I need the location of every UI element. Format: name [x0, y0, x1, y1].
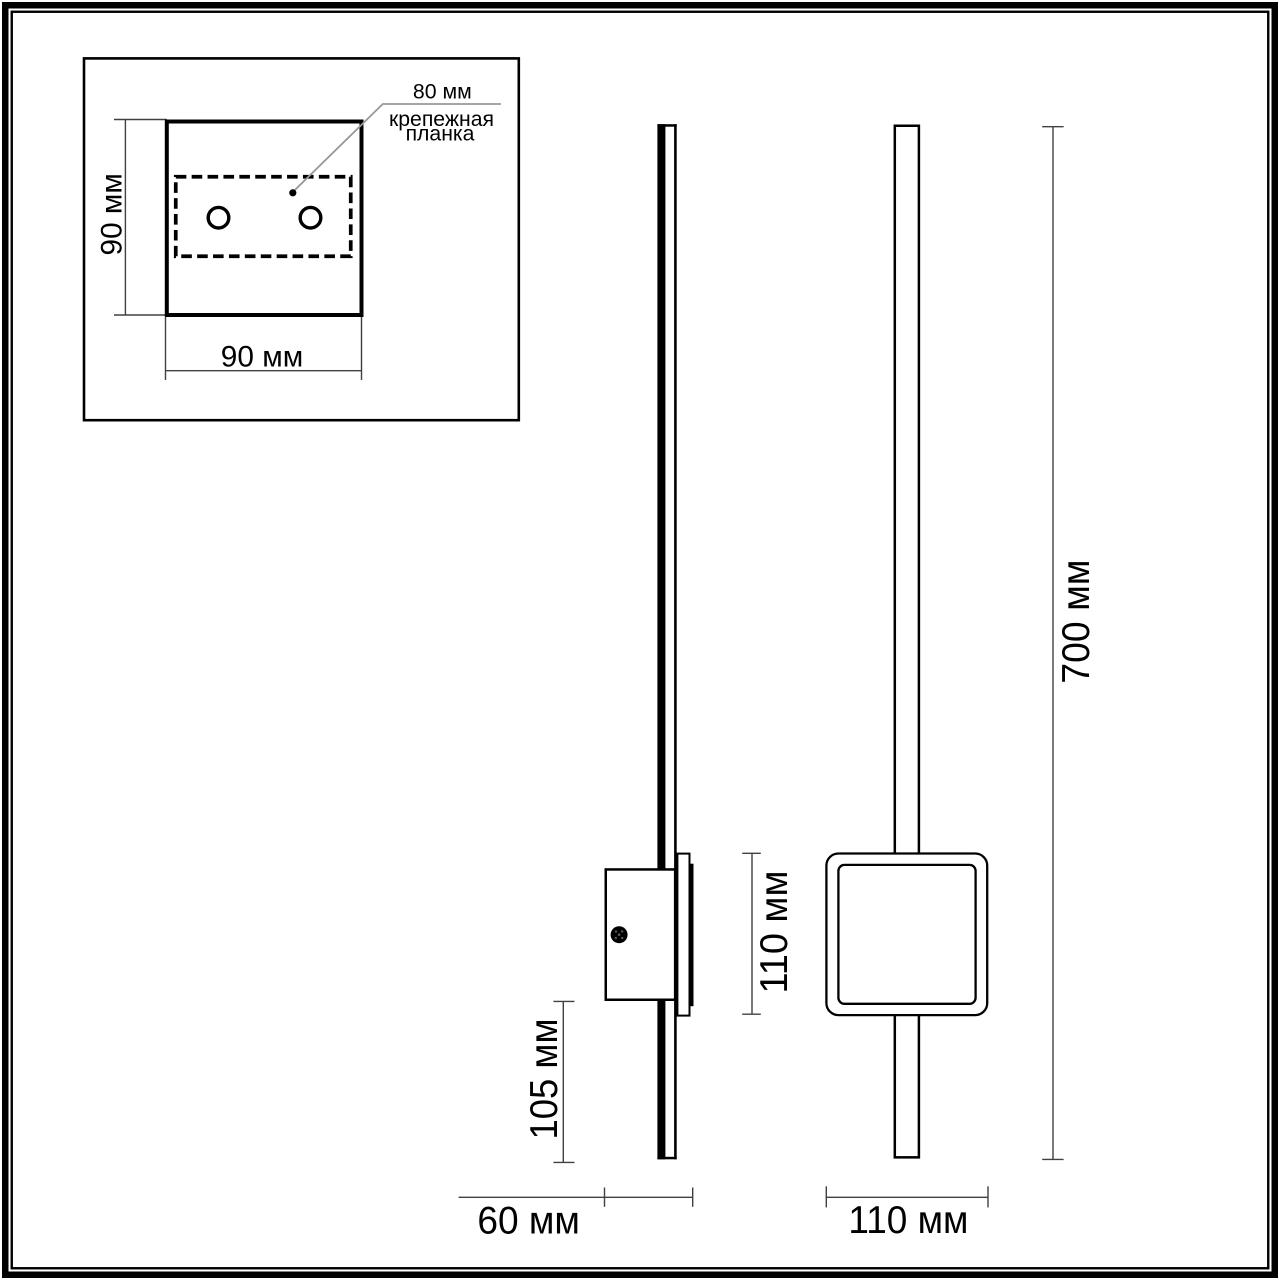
svg-text:90 мм: 90 мм — [221, 340, 303, 373]
svg-text:105 мм: 105 мм — [523, 1019, 566, 1140]
svg-text:80 мм: 80 мм — [413, 80, 472, 104]
svg-text:60 мм: 60 мм — [477, 1200, 580, 1243]
svg-text:700 мм: 700 мм — [1055, 560, 1098, 684]
svg-text:90 мм: 90 мм — [95, 173, 128, 255]
svg-text:110 мм: 110 мм — [753, 871, 796, 994]
svg-text:планка: планка — [406, 123, 475, 146]
svg-text:110 мм: 110 мм — [848, 1199, 968, 1242]
